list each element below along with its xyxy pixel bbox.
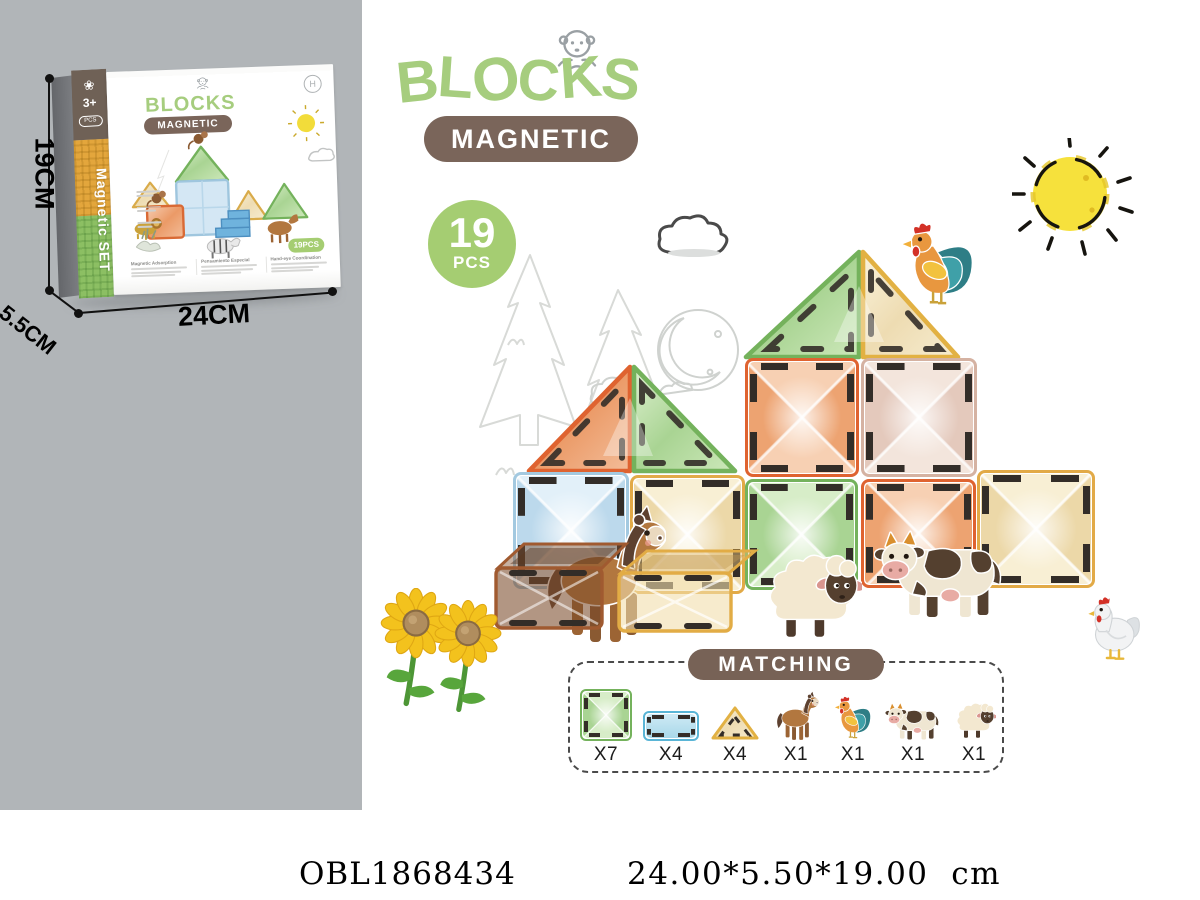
monkey-figure <box>188 131 208 149</box>
feature-heading: Magnetic Adsorption <box>131 259 188 266</box>
matching-item-rooster: X1 <box>832 694 874 766</box>
rooster-figure <box>897 218 979 308</box>
blue-rect-tile-icon <box>643 711 699 741</box>
cloud-sketch-icon <box>582 372 672 414</box>
horse-icon <box>771 691 821 741</box>
cow-figure <box>874 527 1006 620</box>
matching-count: X1 <box>962 744 986 766</box>
left-gray-panel: ❀ 3+ PCS Magnetic SET BLOCKS MAGNETIC H <box>0 0 362 810</box>
box-front-face: BLOCKS MAGNETIC H <box>106 64 341 295</box>
box-pcs-badge: 19PCS <box>288 238 324 253</box>
moon-sketch-icon <box>640 300 760 410</box>
matching-count: X1 <box>784 744 808 766</box>
box-spine-brown: ❀ 3+ PCS <box>71 69 108 141</box>
tile-square-orange <box>745 358 859 477</box>
sunflower-icon-2 <box>432 600 504 714</box>
height-dimension-label: 19CM <box>29 137 60 209</box>
box-spine-title: Magnetic SET <box>74 145 114 297</box>
age-badge: 3+ <box>83 95 97 110</box>
sheep-icon <box>952 701 996 741</box>
green-square-tile-icon <box>580 689 632 741</box>
matching-items-row: X7 X4 X4 X1 X1 <box>580 694 996 766</box>
tile-square-peach <box>861 358 977 477</box>
roof-left-triangles <box>503 358 747 476</box>
matching-item-horse: X1 <box>771 694 821 766</box>
open-box-yellow <box>613 545 761 639</box>
yellow-triangle-tile-icon <box>710 705 760 741</box>
zebra-figure <box>207 238 241 259</box>
rooster-icon <box>832 693 874 741</box>
matching-count: X4 <box>723 744 747 766</box>
feature-heading: Pensamiento Especial <box>201 257 257 264</box>
matching-count: X1 <box>841 744 865 766</box>
matching-item-cow: X1 <box>885 694 941 766</box>
depth-dimension-label: 5.5CM <box>0 300 61 360</box>
matching-count: X1 <box>901 744 925 766</box>
hen-figure <box>1082 588 1146 664</box>
feature-heading: Hand-eye Coordination <box>270 254 326 261</box>
product-dimensions: 24.00*5.50*19.00 cm <box>627 856 1001 892</box>
pcs-unit: PCS <box>428 256 516 270</box>
product-code: OBL1868434 <box>299 856 516 892</box>
matching-title-pill: MATCHING <box>688 649 884 680</box>
pcs-number: 19 <box>428 210 516 256</box>
pcs-count-badge: 19 PCS <box>428 200 516 288</box>
flower-icon: ❀ <box>83 77 94 94</box>
box-spec-list <box>136 188 162 238</box>
brand-logo: BLOCKS <box>396 44 666 111</box>
matching-item-blue-rect: X4 <box>643 694 699 766</box>
matching-item-sheep: X1 <box>952 694 996 766</box>
pcs-oval-badge: PCS <box>78 115 102 127</box>
product-listing-image: ❀ 3+ PCS Magnetic SET BLOCKS MAGNETIC H <box>0 0 1200 900</box>
product-box-photo: ❀ 3+ PCS Magnetic SET BLOCKS MAGNETIC H <box>51 59 341 303</box>
matching-count: X7 <box>594 744 618 766</box>
cloud-icon <box>650 208 738 264</box>
dim-dot <box>328 287 337 296</box>
cow-icon <box>885 701 941 741</box>
open-box-brown <box>490 536 632 636</box>
sun-icon <box>1012 138 1147 263</box>
matching-count: X4 <box>659 744 683 766</box>
matching-item-green-square: X7 <box>580 694 632 766</box>
width-dimension-label: 24CM <box>177 298 251 333</box>
sheep-figure <box>758 548 862 646</box>
subbrand-pill: MAGNETIC <box>424 116 638 162</box>
matching-item-yellow-triangle: X4 <box>710 694 760 766</box>
